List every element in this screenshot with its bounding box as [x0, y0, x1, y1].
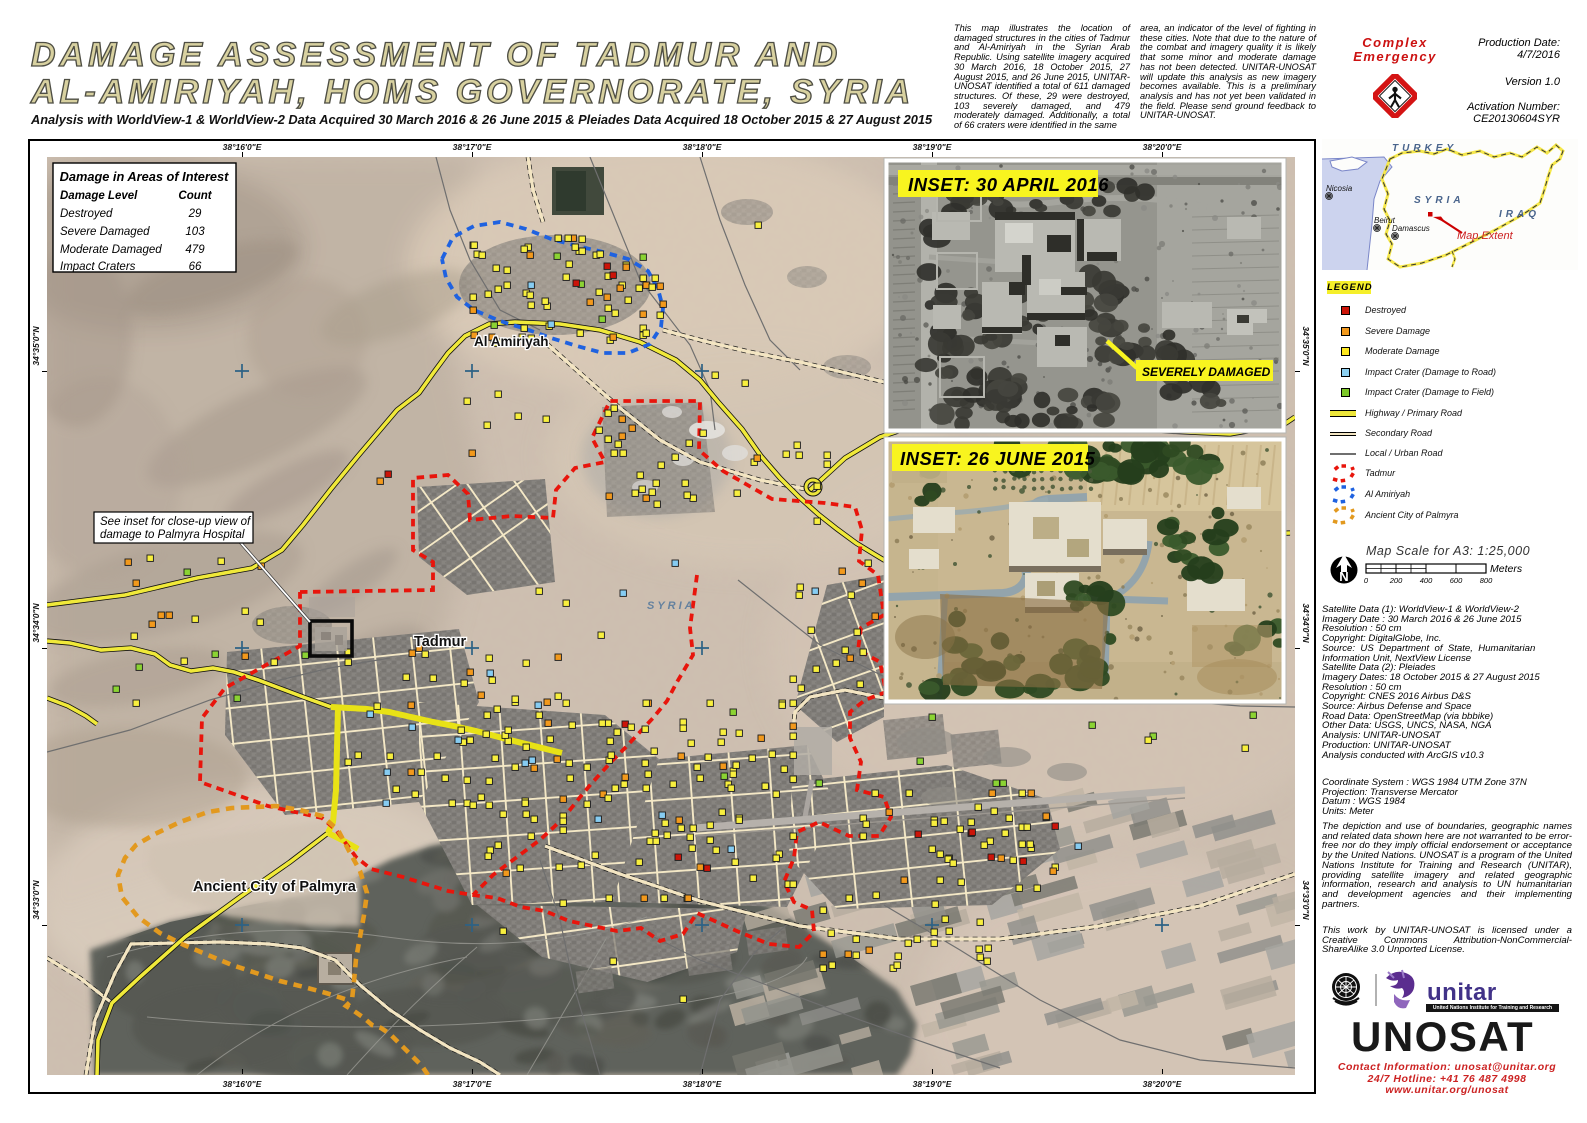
svg-text:Damage in Areas of Interest: Damage in Areas of Interest — [60, 169, 230, 184]
svg-text:Ancient City of Palmyra: Ancient City of Palmyra — [193, 879, 357, 895]
svg-text:SYRIA: SYRIA — [1414, 195, 1465, 206]
svg-text:Destroyed: Destroyed — [60, 208, 113, 220]
svg-text:Damage Level: Damage Level — [60, 190, 138, 202]
svg-text:Tadmur: Tadmur — [414, 634, 466, 650]
svg-text:400: 400 — [1420, 576, 1433, 585]
svg-text:Map Extent: Map Extent — [1457, 230, 1514, 242]
svg-text:800: 800 — [1480, 576, 1493, 585]
svg-text:INSET: 30 APRIL 2016: INSET: 30 APRIL 2016 — [908, 174, 1109, 195]
svg-text:Al Amiriyah: Al Amiriyah — [474, 334, 549, 349]
svg-text:66: 66 — [189, 261, 202, 273]
svg-text:See inset for close-up view of: See inset for close-up view of — [100, 516, 252, 528]
svg-text:29: 29 — [188, 208, 202, 220]
svg-text:0: 0 — [1364, 576, 1369, 585]
svg-text:Severe Damaged: Severe Damaged — [60, 226, 150, 238]
svg-text:Nicosia: Nicosia — [1326, 184, 1353, 193]
svg-text:600: 600 — [1450, 576, 1463, 585]
svg-text:Count: Count — [178, 190, 212, 202]
svg-text:SYRIA: SYRIA — [647, 600, 696, 612]
svg-text:479: 479 — [185, 244, 205, 256]
svg-text:Moderate Damaged: Moderate Damaged — [60, 244, 162, 256]
svg-text:Impact Craters: Impact Craters — [60, 261, 136, 273]
svg-text:200: 200 — [1389, 576, 1403, 585]
svg-text:INSET: 26 JUNE 2015: INSET: 26 JUNE 2015 — [900, 448, 1095, 469]
svg-text:TURKEY: TURKEY — [1392, 143, 1457, 154]
svg-text:103: 103 — [185, 226, 205, 238]
svg-text:Meters: Meters — [1490, 563, 1523, 575]
svg-text:N: N — [1339, 569, 1348, 584]
svg-text:SEVERELY DAMAGED: SEVERELY DAMAGED — [1142, 365, 1271, 379]
svg-text:IRAQ: IRAQ — [1499, 209, 1540, 220]
svg-text:Damascus: Damascus — [1392, 224, 1430, 233]
svg-text:damage to Palmyra Hospital: damage to Palmyra Hospital — [100, 529, 245, 541]
